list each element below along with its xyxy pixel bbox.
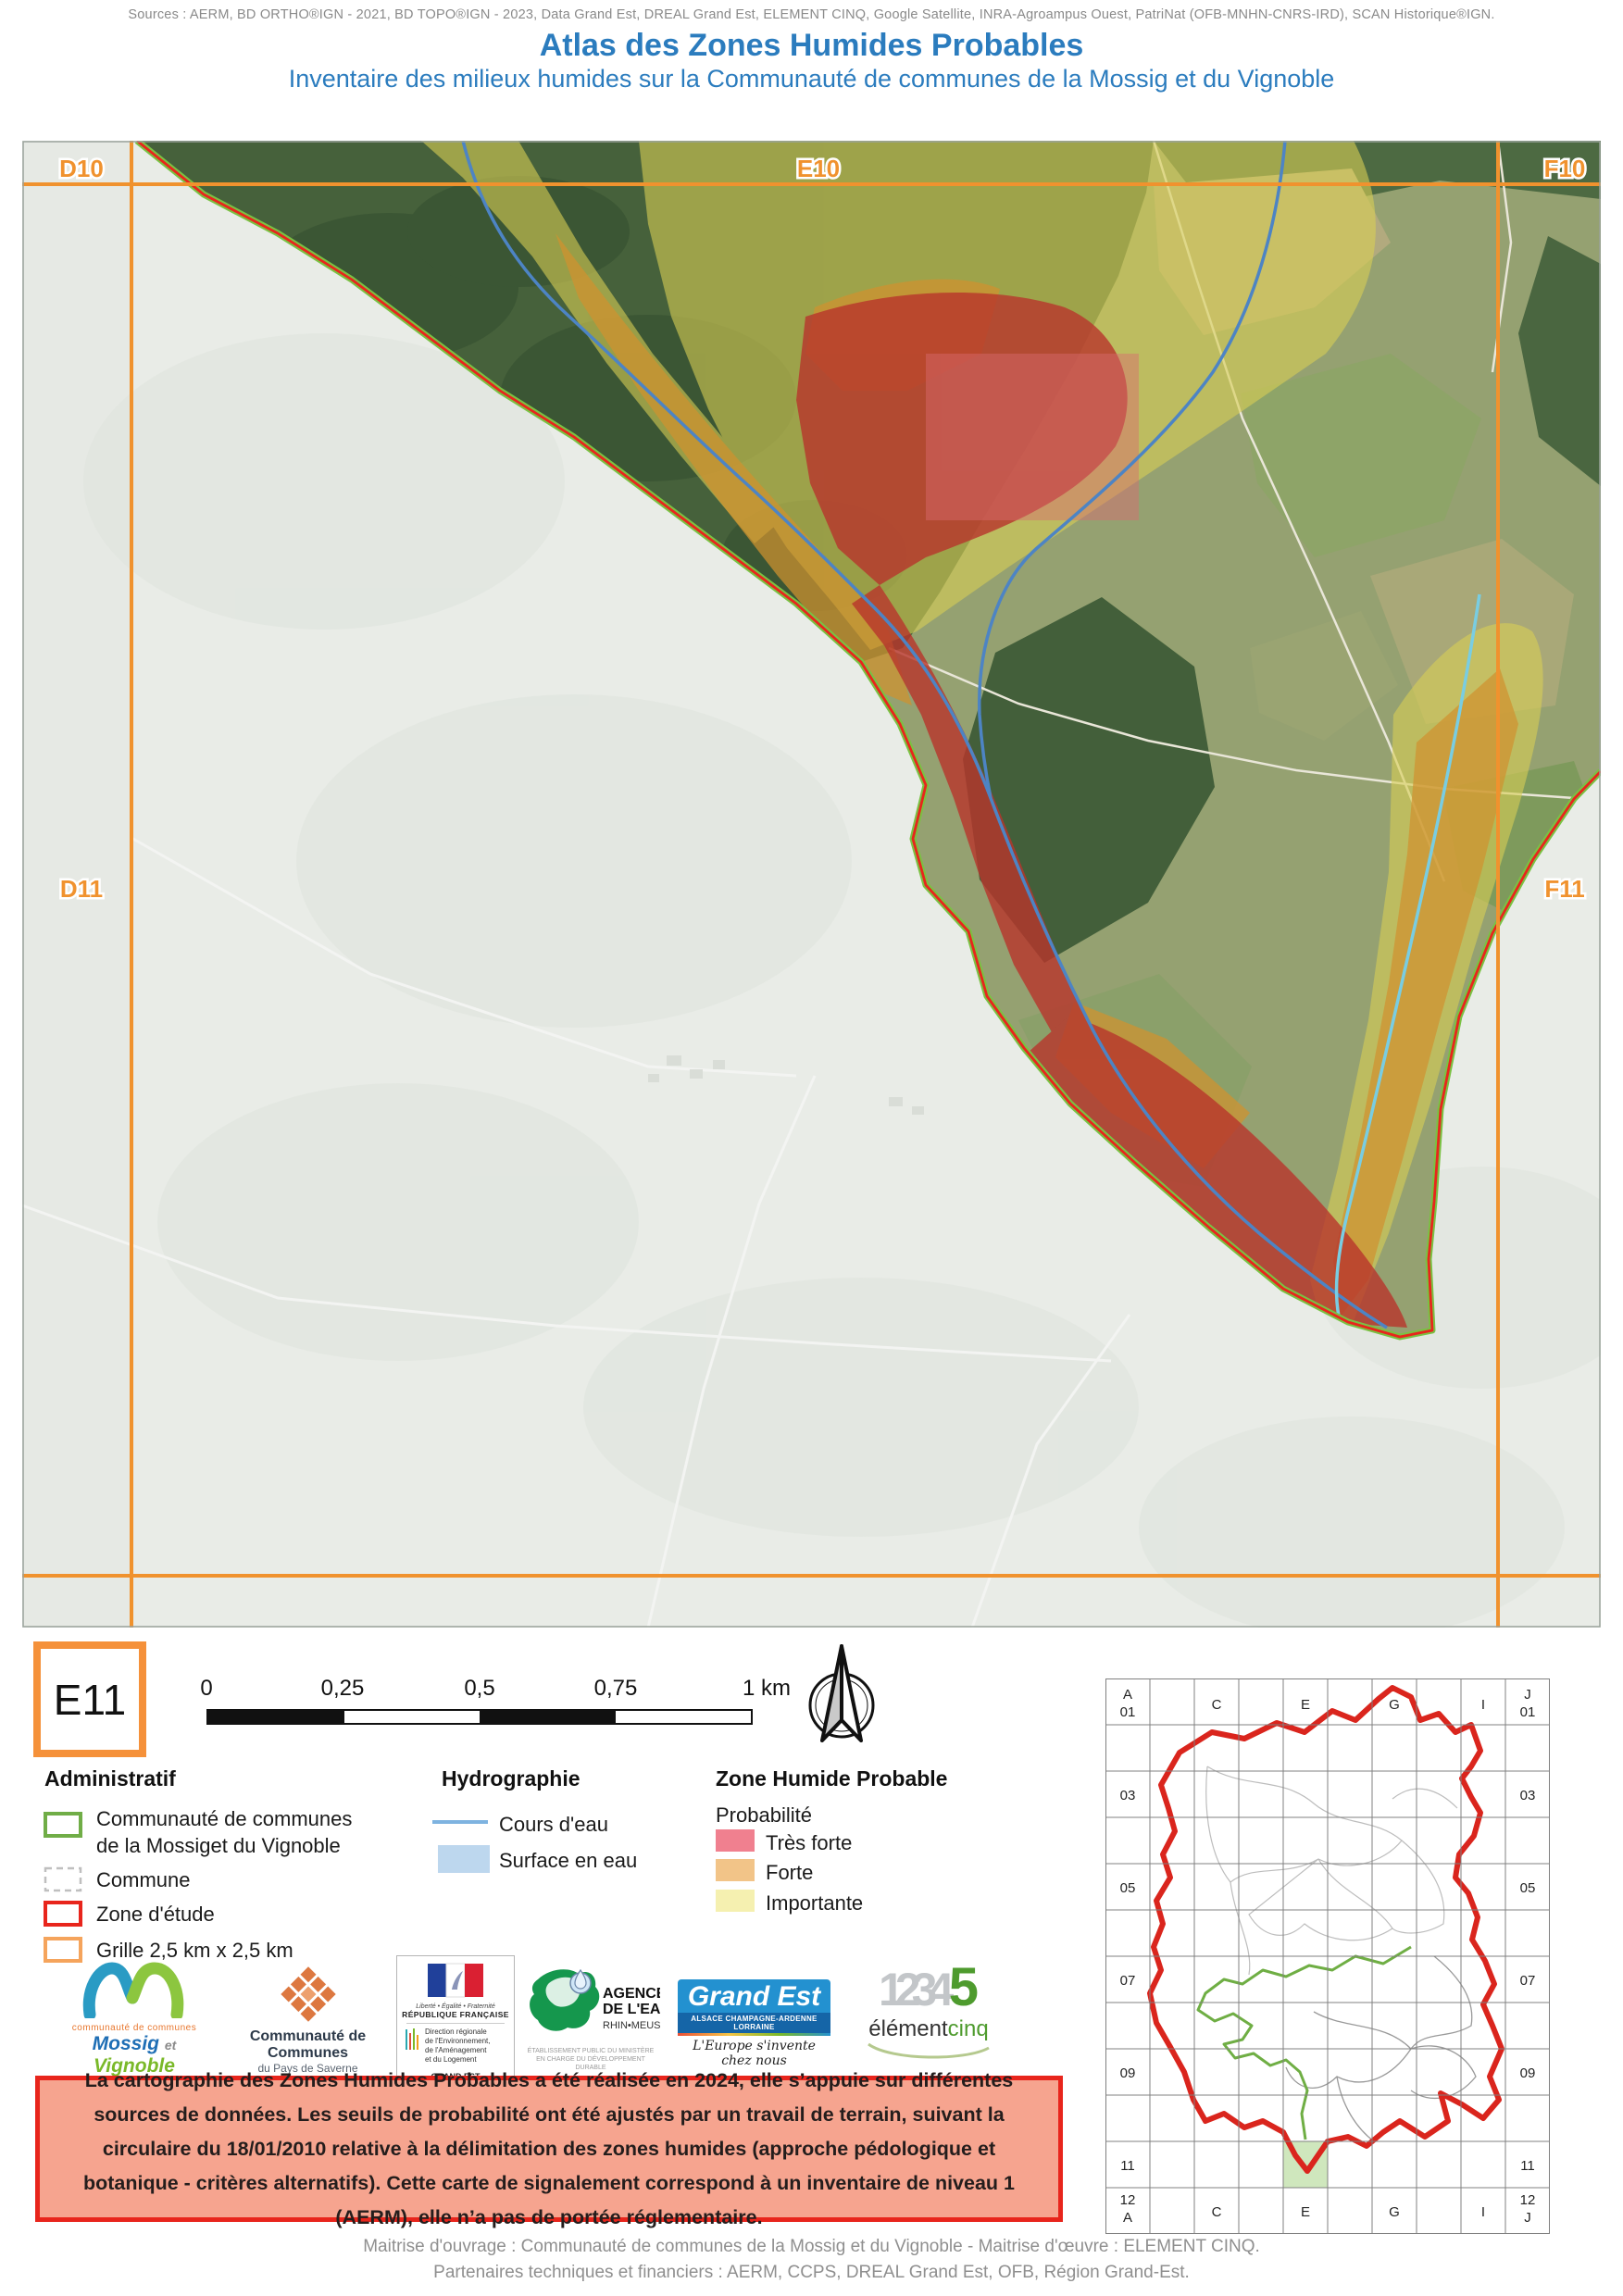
svg-text:E: E: [1301, 1697, 1310, 1713]
main-map: D10 E10 F10 D11 F11: [22, 141, 1601, 1628]
legend-importante-label: Importante: [766, 1890, 863, 1916]
scale-tick-0: 0: [200, 1676, 212, 1702]
commune-swatch: [44, 1866, 82, 1892]
logo-agence-eau: AGENCE DE L'EAU RHIN•MEUSE ÉTABLISSEMENT…: [521, 1963, 660, 2072]
logo-element-cinq: 1234 5 élémentcinq: [859, 1963, 998, 2065]
scale-tick-05: 0,5: [464, 1676, 494, 1702]
tile-code-box: E11: [33, 1641, 146, 1757]
grid-label-d11: D11: [60, 875, 103, 903]
atlas-page: Sources : AERM, BD ORTHO®IGN - 2021, BD …: [0, 0, 1623, 2296]
svg-text:G: G: [1389, 1697, 1400, 1713]
notice-box: La cartographie des Zones Humides Probab…: [35, 2076, 1063, 2222]
dreal-bars-icon: [405, 2028, 421, 2052]
mossig-m-icon: [79, 1961, 190, 2018]
svg-text:A: A: [1123, 2210, 1132, 2226]
grid-label-e10: E10: [797, 155, 840, 182]
svg-text:J: J: [1524, 2210, 1531, 2226]
svg-text:01: 01: [1520, 1704, 1536, 1720]
cours-eau-swatch: [431, 1815, 490, 1829]
svg-text:E: E: [1301, 2204, 1310, 2220]
legend-surface-eau-label: Surface en eau: [499, 1847, 637, 1874]
credits-line-1: Maitrise d'ouvrage : Communauté de commu…: [0, 2237, 1623, 2257]
legend-forte-label: Forte: [766, 1859, 813, 1886]
legend-probabilite-label: Probabilité: [716, 1802, 812, 1828]
svg-text:11: 11: [1120, 2158, 1135, 2174]
legend-administratif-title: Administratif: [44, 1766, 176, 1791]
svg-text:05: 05: [1520, 1880, 1536, 1896]
legend-grille-label: Grille 2,5 km x 2,5 km: [96, 1937, 293, 1964]
svg-text:12: 12: [1520, 2192, 1536, 2208]
legend-tres-forte-label: Très forte: [766, 1829, 852, 1856]
tres-forte-swatch: [716, 1829, 755, 1852]
grille-swatch: [44, 1937, 82, 1963]
cc-boundary-swatch: [44, 1812, 82, 1838]
svg-text:03: 03: [1120, 1788, 1136, 1803]
france-flag-icon: [428, 1962, 483, 1999]
scale-bar: [206, 1709, 753, 1725]
svg-text:07: 07: [1520, 1973, 1536, 1989]
svg-text:C: C: [1212, 1697, 1222, 1713]
legend-hydrographie-title: Hydrographie: [442, 1766, 581, 1791]
svg-text:09: 09: [1120, 2065, 1136, 2081]
zone-etude-swatch: [44, 1901, 82, 1927]
svg-text:AGENCE: AGENCE: [603, 1986, 660, 2002]
svg-text:I: I: [1481, 2204, 1485, 2220]
grid-label-f10: F10: [1544, 155, 1586, 182]
legend-zone-etude-label: Zone d'étude: [96, 1901, 215, 1928]
legend-cc-label: Communauté de communes de la Mossiget du…: [96, 1805, 352, 1859]
logo-grand-est: Grand Est ALSACE CHAMPAGNE-ARDENNE LORRA…: [678, 1979, 830, 2068]
page-title: Atlas des Zones Humides Probables: [0, 28, 1623, 64]
svg-text:I: I: [1481, 1697, 1485, 1713]
grid-label-f11: F11: [1544, 875, 1584, 903]
svg-text:07: 07: [1120, 1973, 1136, 1989]
legend-commune-label: Commune: [96, 1866, 190, 1893]
north-arrow-icon: [802, 1641, 881, 1752]
scale-tick-075: 0,75: [594, 1676, 638, 1702]
svg-text:11: 11: [1520, 2158, 1535, 2174]
svg-text:C: C: [1212, 2204, 1222, 2220]
svg-text:DE L'EAU: DE L'EAU: [603, 2002, 660, 2017]
tile-code: E11: [54, 1675, 126, 1725]
scale-tick-1km: 1 km: [743, 1676, 791, 1702]
surface-eau-swatch: [438, 1845, 490, 1873]
notice-text: La cartographie des Zones Humides Probab…: [40, 2058, 1058, 2240]
svg-text:A: A: [1123, 1687, 1132, 1703]
page-subtitle: Inventaire des milieux humides sur la Co…: [0, 65, 1623, 94]
sources-line: Sources : AERM, BD ORTHO®IGN - 2021, BD …: [0, 7, 1623, 22]
saverne-diamond-icon: [279, 1965, 338, 2024]
legend-zhp-title: Zone Humide Probable: [716, 1766, 947, 1791]
overview-map: A01 J01 CE GI 0303 0505 0707 0909 1111 1…: [1105, 1678, 1550, 2234]
grid-label-d10: D10: [59, 155, 104, 182]
forte-swatch: [716, 1859, 755, 1881]
svg-text:03: 03: [1520, 1788, 1536, 1803]
svg-text:09: 09: [1520, 2065, 1536, 2081]
svg-text:12: 12: [1120, 2192, 1136, 2208]
svg-text:RHIN•MEUSE: RHIN•MEUSE: [603, 2020, 660, 2031]
svg-text:J: J: [1524, 1687, 1531, 1703]
credits-line-2: Partenaires techniques et financiers : A…: [0, 2263, 1623, 2283]
scale-tick-025: 0,25: [321, 1676, 365, 1702]
legend-cours-eau-label: Cours d'eau: [499, 1811, 608, 1838]
svg-text:05: 05: [1120, 1880, 1136, 1896]
importante-swatch: [716, 1890, 755, 1912]
svg-text:G: G: [1389, 2204, 1400, 2220]
svg-text:01: 01: [1120, 1704, 1136, 1720]
agence-eau-icon: AGENCE DE L'EAU RHIN•MEUSE: [521, 1963, 660, 2042]
